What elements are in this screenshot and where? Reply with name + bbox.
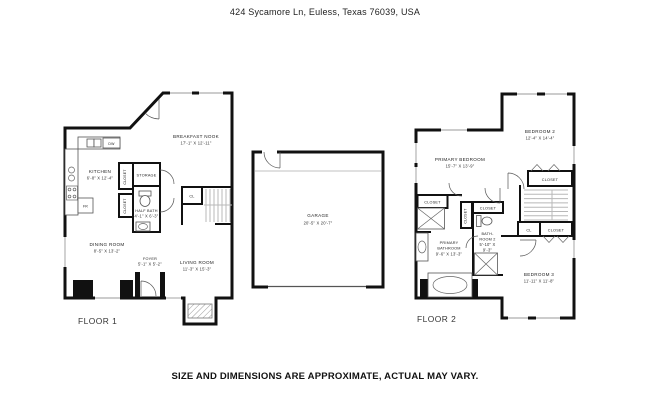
- room-label-half-bath: HALF BATH: [135, 209, 157, 213]
- dishwasher-label: DW: [108, 142, 115, 146]
- room-dims-breakfast-nook: 17'-1" X 12'-11": [180, 141, 211, 146]
- garage-outer-walls: [253, 152, 383, 287]
- disclaimer-text: SIZE AND DIMENSIONS ARE APPROXIMATE, ACT…: [0, 371, 650, 382]
- room-dims-dining: 8'-5" X 13'-2": [94, 249, 121, 254]
- room-label-cl: CL: [189, 195, 194, 199]
- bathtub-icon: [420, 273, 478, 298]
- room-dims-half-bath: 4'-1" X 6'-3": [135, 214, 159, 219]
- floor1-plan: DW FR: [63, 91, 232, 326]
- refrigerator-label: FR: [83, 205, 88, 209]
- room-label-primary-bathroom-1: PRIMARY: [440, 241, 459, 245]
- room-dims-foyer: 5'-1" X 5'-2": [138, 262, 162, 267]
- shower-icon-bath2: [475, 253, 498, 275]
- floor-plan-canvas: DW FR: [0, 0, 650, 405]
- room-dims-bedroom3: 11'-11" X 11'-8": [524, 279, 555, 284]
- room-label-storage: STORAGE: [137, 174, 157, 178]
- toilet-icon-bath2: [477, 216, 493, 227]
- toilet-icon: [139, 191, 151, 207]
- room-label-garage: GARAGE: [307, 213, 328, 218]
- entry-step: [188, 304, 212, 318]
- room-label-primary-bedroom: PRIMARY BEDROOM: [435, 157, 485, 162]
- room-label-dining: DINING ROOM: [90, 242, 125, 247]
- room-label-closet-upper: CLOSET: [123, 169, 127, 185]
- room-dims-primary-bathroom: 9'-6" X 13'-3": [436, 252, 463, 257]
- room-label-foyer: FOYER: [143, 257, 157, 261]
- room-label-closet-lower: CLOSET: [123, 198, 127, 214]
- shower-icon-primary: [418, 208, 445, 229]
- room-label-cl-floor2: CL: [526, 229, 531, 233]
- room-label-bedroom3: BEDROOM 3: [524, 272, 554, 277]
- floor-plan-page: 424 Sycamore Ln, Euless, Texas 76039, US…: [0, 0, 650, 405]
- room-dims-bathroom2-1: 5'-10" X: [480, 242, 496, 247]
- room-dims-living: 11'-3" X 15'-3": [183, 267, 212, 272]
- room-label-breakfast-nook: BREAKFAST NOOK: [173, 134, 220, 139]
- room-label-closet-top: CLOSET: [542, 178, 559, 182]
- stairs-icon: [204, 189, 232, 222]
- room-label-primary-bathroom-2: BATHROOM: [437, 247, 460, 251]
- room-label-closet-right: CLOSET: [548, 229, 565, 233]
- refrigerator: FR: [78, 198, 93, 213]
- room-label-closet-left: CLOSET: [424, 201, 441, 205]
- garage-plan: GARAGE 20'-5" X 20'-7": [253, 150, 383, 290]
- room-label-bathroom2-1: BATH-: [481, 232, 494, 236]
- room-dims-primary-bedroom: 15'-7" X 13'-9": [446, 164, 475, 169]
- floor2-plan: PRIMARY BEDROOM 15'-7" X 13'-9" BEDROOM …: [414, 92, 577, 324]
- room-dims-kitchen: 6'-8" X 12'-4": [87, 176, 114, 181]
- room-label-kitchen: KITCHEN: [89, 169, 111, 174]
- room-dims-bedroom2: 12'-4" X 14'-4": [526, 136, 555, 141]
- sink-icon: [136, 222, 150, 231]
- floor2-label: FLOOR 2: [417, 314, 456, 324]
- address-title: 424 Sycamore Ln, Euless, Texas 76039, US…: [0, 7, 650, 17]
- room-dims-garage: 20'-5" X 20'-7": [304, 221, 333, 226]
- sink-icon-primary: [416, 233, 428, 261]
- room-label-closet-vert: CLOSET: [464, 208, 468, 224]
- stairs-icon-floor2: [524, 190, 568, 220]
- room-label-closet-mid: CLOSET: [480, 207, 497, 211]
- floor1-label: FLOOR 1: [78, 316, 117, 326]
- room-label-bedroom2: BEDROOM 2: [525, 129, 555, 134]
- room-label-bathroom2-2: ROOM 2: [479, 238, 495, 242]
- room-dims-bathroom2-2: 9'-3": [483, 248, 492, 253]
- room-label-living: LIVING ROOM: [180, 260, 214, 265]
- dishwasher: DW: [103, 138, 120, 148]
